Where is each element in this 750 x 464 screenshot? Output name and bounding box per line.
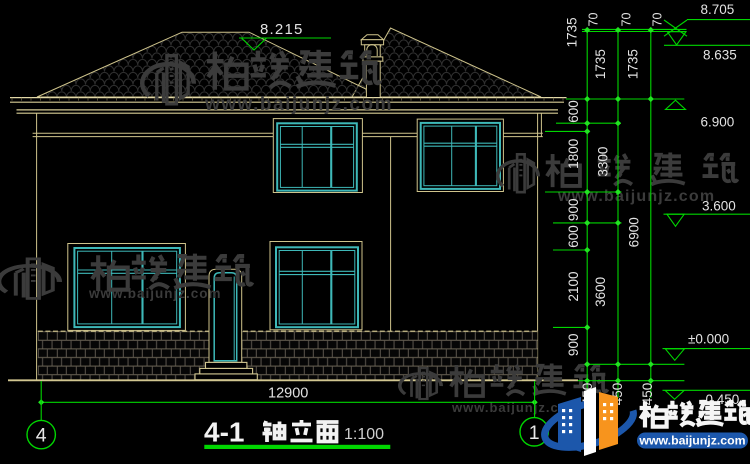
svg-text:1735: 1735	[593, 49, 608, 79]
svg-text:70: 70	[587, 13, 601, 27]
svg-text:70: 70	[620, 13, 634, 27]
svg-text:1735: 1735	[565, 17, 580, 47]
svg-text:8.705: 8.705	[701, 2, 735, 17]
svg-text:3.600: 3.600	[702, 199, 736, 214]
svg-text:www.baijunjz.com: www.baijunjz.com	[204, 94, 393, 115]
svg-text:450: 450	[640, 383, 655, 406]
svg-text:900: 900	[566, 199, 581, 222]
svg-text:3600: 3600	[593, 277, 608, 307]
svg-text:600: 600	[566, 225, 581, 248]
svg-text:600: 600	[566, 100, 581, 123]
svg-text:1:100: 1:100	[344, 426, 384, 443]
svg-text:4-1: 4-1	[204, 417, 244, 448]
svg-text:900: 900	[566, 334, 581, 357]
svg-text:70: 70	[651, 13, 665, 27]
svg-text:1: 1	[529, 422, 540, 444]
svg-text:1735: 1735	[626, 49, 641, 79]
svg-text:±0.000: ±0.000	[688, 332, 729, 347]
svg-text:8.215: 8.215	[260, 21, 304, 38]
svg-text:www.baijunjz.com: www.baijunjz.com	[638, 434, 745, 448]
svg-text:4: 4	[36, 425, 47, 447]
svg-text:12900: 12900	[268, 386, 308, 402]
svg-text:2100: 2100	[566, 271, 581, 301]
svg-text:www.baijunjz.com: www.baijunjz.com	[88, 286, 222, 301]
svg-text:8.635: 8.635	[703, 48, 737, 63]
svg-text:3300: 3300	[596, 147, 611, 177]
svg-text:1800: 1800	[566, 139, 581, 169]
svg-text:6900: 6900	[627, 217, 642, 247]
svg-text:6.900: 6.900	[701, 115, 735, 130]
